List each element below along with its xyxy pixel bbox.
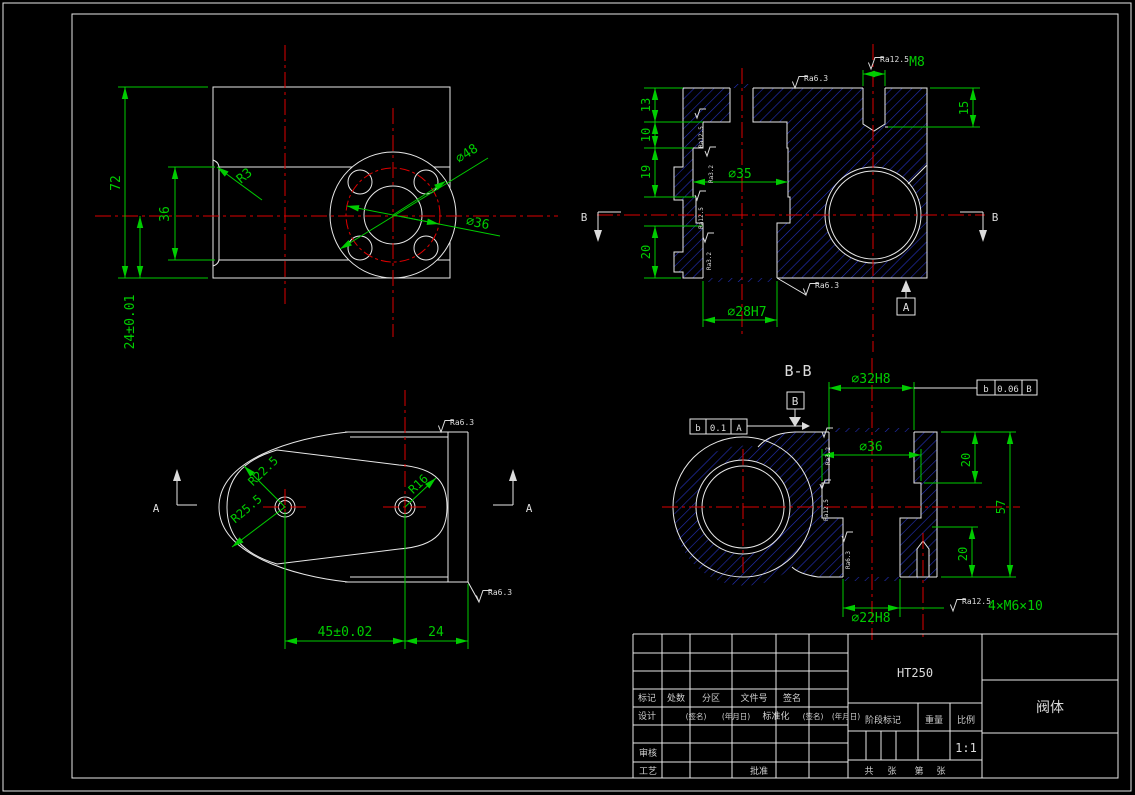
side-annotations: A A Ra6.3 Ra6.3 (153, 418, 533, 602)
dim-36-label: 36 (158, 206, 173, 222)
side-ra63-top-label: Ra6.3 (450, 418, 474, 427)
material-label: HT250 (897, 666, 933, 680)
label-sheet-total: 共 (864, 766, 873, 777)
label-sheet-zhang-2: 张 (936, 766, 945, 777)
label-sig-paren: (签名) (686, 711, 707, 721)
leader-arrow-icon (802, 422, 810, 430)
section-arrow-icon (509, 469, 517, 481)
fcf-left-tolerance: 0.1 (710, 424, 726, 434)
section-bb-title: B-B (784, 362, 811, 380)
label-standardization: 标准化 (762, 710, 789, 722)
dim-20-bottom-label: 20 (956, 547, 970, 561)
side-ra63-bottom-label: Ra6.3 (488, 588, 512, 597)
dim-10-label: 10 (639, 128, 653, 142)
dim-d28h7-label: ⌀28H7 (727, 305, 766, 320)
surface-finish-icon (705, 147, 716, 156)
ra63-bottom-label: Ra6.3 (815, 281, 839, 290)
label-date-paren-2: (年月日) (832, 711, 860, 721)
engineering-drawing: 72 36 24±0.01 R3 ⌀48 ⌀36 (0, 0, 1135, 795)
label-review: 审核 (639, 747, 657, 759)
section-b-right-label: B (992, 211, 999, 224)
dim-r225-label: R22.5 (245, 454, 281, 489)
dim-72-label: 72 (109, 175, 124, 191)
fcf-top-datum: B (1026, 385, 1031, 395)
side-dimensions: 45±0.02 24 R22.5 R25.5 R16 (228, 454, 468, 649)
scale-value: 1:1 (955, 741, 977, 755)
bb-step-finish-1: Ra3.2 (825, 447, 832, 465)
section-b-left-label: B (581, 211, 588, 224)
label-approve: 批准 (750, 765, 768, 777)
drawing-frame (3, 3, 1131, 791)
section-a-right-label: A (526, 502, 533, 515)
fcf-left-datum: A (736, 424, 742, 434)
datum-b-label: B (792, 395, 799, 408)
dim-d22h8-label: ⌀22H8 (851, 611, 890, 626)
ra125-label: Ra12.5 (880, 55, 909, 64)
section-arrow-icon (594, 230, 602, 242)
dim-24-label: 24 (428, 625, 444, 640)
dim-d36-bb-label: ⌀36 (859, 440, 882, 455)
dim-24-tol-label: 24±0.01 (123, 295, 138, 350)
cad-drawing-canvas: 72 36 24±0.01 R3 ⌀48 ⌀36 (0, 0, 1135, 795)
dim-m8-label: M8 (909, 55, 925, 70)
label-sheet-zhang: 张 (887, 766, 896, 777)
fcf-top-tolerance: 0.06 (997, 385, 1019, 395)
bb-ra125-label: Ra12.5 (962, 597, 991, 606)
label-sheet-no: 第 (914, 765, 923, 777)
dim-15-label: 15 (957, 101, 971, 115)
view-section-bb: ⌀32H8 ⌀36 20 57 20 ⌀22H8 4×M6×10 B-B Ra1… (662, 358, 1043, 640)
bb-step-finish-2: Ra12.5 (823, 499, 830, 521)
dim-r255-label: R25.5 (228, 492, 265, 526)
label-file-no: 文件号 (740, 692, 767, 704)
dim-20-label: 20 (639, 245, 653, 259)
surface-finish-icon (695, 191, 706, 200)
label-zone: 分区 (702, 693, 720, 704)
label-signature: 签名 (783, 692, 801, 704)
dim-d35-label: ⌀35 (728, 167, 751, 182)
label-date-paren: (年月日) (722, 711, 750, 721)
fcf-top-symbol: b (983, 385, 988, 395)
dim-m6-label: 4×M6×10 (988, 599, 1043, 614)
dim-d32h8-label: ⌀32H8 (851, 372, 890, 387)
bb-step-finish-3: Ra6.3 (845, 551, 852, 569)
label-stage-mark: 阶段标记 (865, 714, 901, 726)
label-weight: 重量 (925, 714, 943, 726)
step-finish-2: Ra3.2 (708, 165, 715, 183)
plan-outline (213, 87, 456, 278)
section-arrow-icon (173, 469, 181, 481)
dim-20-top-label: 20 (959, 453, 973, 467)
part-name: 阀体 (1036, 700, 1064, 716)
datum-a-label: A (903, 301, 910, 314)
dim-45-tol-label: 45±0.02 (318, 625, 373, 640)
label-scale: 比例 (957, 714, 975, 726)
section-a-left-label: A (153, 502, 160, 515)
step-finish-4: Ra3.2 (706, 252, 713, 270)
view-side: 45±0.02 24 R22.5 R25.5 R16 A A Ra6.3 Ra6… (153, 390, 533, 649)
dim-13-label: 13 (639, 98, 653, 112)
surface-finish-icon (703, 233, 714, 242)
dim-19-label: 19 (639, 165, 653, 179)
view-front-section: 13 10 19 20 15 M8 ⌀35 ⌀28H7 Ra6.3 Ra12.5… (581, 44, 999, 352)
dim-57-label: 57 (994, 500, 1008, 514)
fcf-left-symbol: b (695, 424, 700, 434)
plan-centerlines (95, 45, 558, 337)
dim-d48-label: ⌀48 (453, 141, 481, 166)
dim-r16-label: R16 (406, 472, 431, 497)
label-sig-paren-2: (签名) (803, 711, 824, 721)
dim-r3-label: R3 (234, 166, 256, 188)
surface-finish-icon (842, 532, 853, 541)
ra63-top-label: Ra6.3 (804, 74, 828, 83)
label-count: 处数 (667, 692, 685, 704)
title-block: 标记 处数 分区 文件号 签名 设计 (签名) (年月日) 标准化 (签名) (… (633, 634, 1118, 778)
label-mark: 标记 (638, 692, 656, 704)
step-finish-1: Ra12.5 (698, 126, 705, 148)
label-design: 设计 (638, 710, 656, 722)
section-arrow-icon (979, 230, 987, 242)
view-plan: 72 36 24±0.01 R3 ⌀48 ⌀36 (95, 45, 558, 349)
step-finish-3: Ra12.5 (698, 207, 705, 229)
datum-triangle-icon (901, 280, 911, 292)
label-process: 工艺 (639, 766, 657, 777)
